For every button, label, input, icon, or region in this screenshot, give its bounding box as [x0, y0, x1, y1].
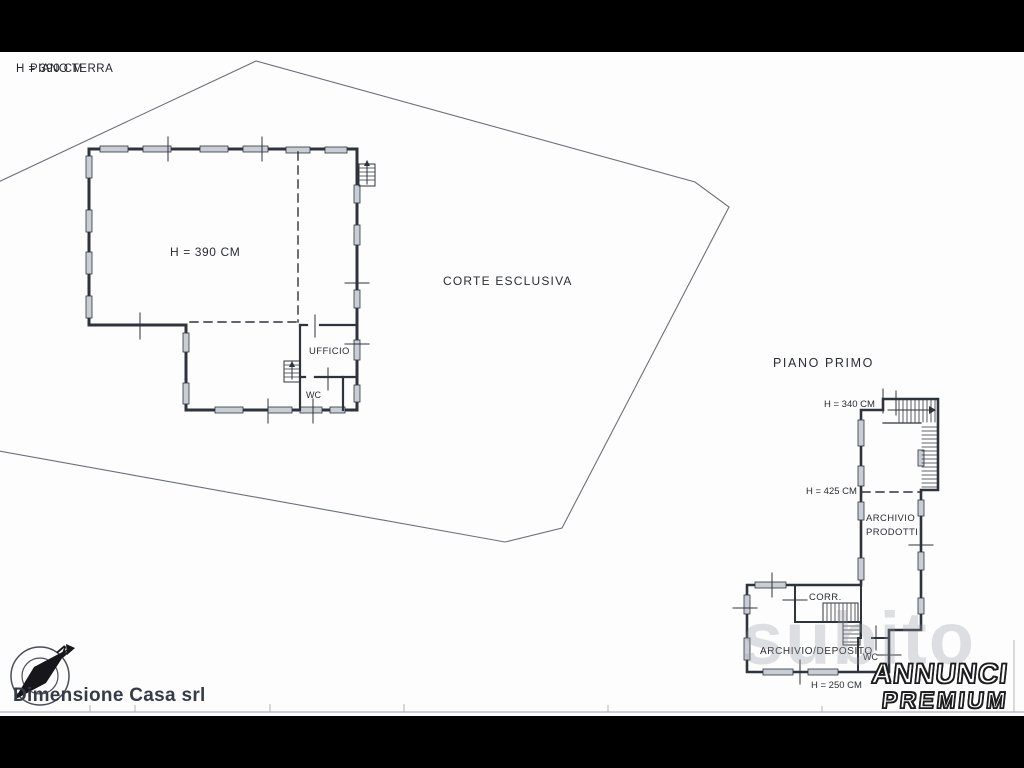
- ground-floor-plan: [86, 137, 375, 423]
- gf-height-label: H = 390 CM: [170, 245, 240, 259]
- ff-archive-label: ARCHIVIOPRODOTTI: [866, 512, 918, 539]
- header-floor-label: PIANO TERRA: [30, 63, 113, 75]
- gf-windows: [86, 146, 360, 413]
- agency-name: Dimensione Casa srl: [13, 685, 206, 707]
- gf-stair-icon: [284, 361, 300, 382]
- annunci-logo-line2: PREMIUM: [881, 687, 1010, 714]
- annunci-logo-line1: ANNUNCI: [870, 658, 1009, 690]
- ff-height-bottom-label: H = 250 CM: [811, 680, 862, 691]
- gf-wc-label: WC: [306, 390, 321, 400]
- gf-exterior-stair-icon: [359, 160, 375, 186]
- ff-title: PIANO PRIMO: [773, 356, 874, 370]
- floorplan-page: N H = 390 CM PIANO TERRA H = 390 CM CORT…: [0, 0, 1024, 768]
- ff-top-stair-icon: [883, 400, 938, 487]
- ff-height-top-label: H = 340 CM: [824, 399, 875, 410]
- property-boundary: [0, 61, 729, 542]
- gf-dimension-ticks: [140, 137, 369, 423]
- gf-office-label: UFFICIO: [309, 346, 350, 357]
- gf-court-label: CORTE ESCLUSIVA: [443, 274, 573, 288]
- ff-archive-line2: PRODOTTI: [866, 527, 918, 538]
- bottom-letterbox-bar: [0, 716, 1024, 768]
- ff-archive-line1: ARCHIVIO: [866, 513, 915, 524]
- ff-height-mid-label: H = 425 CM: [806, 486, 857, 497]
- top-letterbox-bar: [0, 0, 1024, 52]
- gf-outer-walls: [89, 149, 357, 410]
- gf-dashed-lines: [190, 152, 298, 322]
